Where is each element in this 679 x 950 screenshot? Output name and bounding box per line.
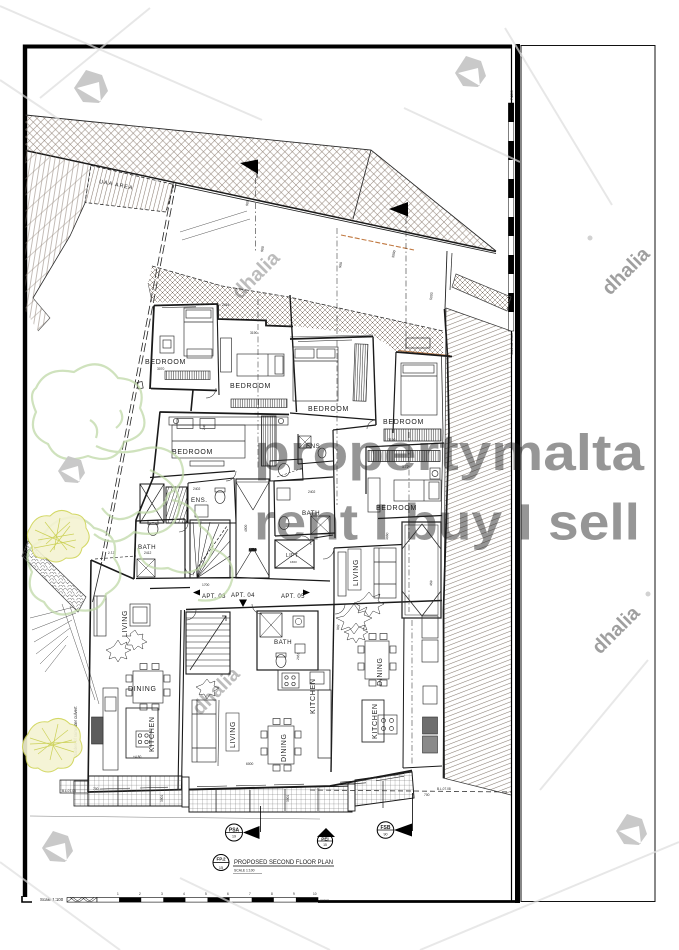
svg-text:700: 700: [424, 793, 430, 797]
svg-text:902: 902: [336, 624, 340, 630]
svg-text:LIVING: LIVING: [122, 610, 129, 637]
svg-text:6000: 6000: [246, 762, 254, 766]
svg-text:BATH: BATH: [274, 639, 292, 646]
svg-text:4: 4: [183, 892, 185, 896]
svg-text:5000: 5000: [429, 292, 434, 300]
svg-text:ENS.: ENS.: [191, 497, 207, 504]
svg-text:19: 19: [232, 835, 236, 839]
svg-text:3190: 3190: [250, 331, 258, 335]
svg-text:APT. 05: APT. 05: [281, 594, 305, 600]
svg-text:459: 459: [429, 580, 433, 586]
svg-text:propertymalta: propertymalta: [254, 424, 645, 481]
svg-text:APT. 04: APT. 04: [231, 593, 255, 599]
svg-text:rent I buy I sell: rent I buy I sell: [254, 494, 640, 551]
svg-text:DINING: DINING: [281, 733, 288, 762]
svg-text:PROPOSED SECOND FLOOR PLAN: PROPOSED SECOND FLOOR PLAN: [234, 859, 333, 866]
svg-text:DINING: DINING: [128, 686, 157, 693]
svg-text:BATH: BATH: [138, 544, 156, 551]
svg-text:15: 15: [323, 843, 327, 847]
svg-text:5: 5: [205, 892, 207, 896]
svg-text:meters: meters: [320, 898, 330, 902]
svg-text:3: 3: [161, 892, 163, 896]
svg-text:1: 1: [117, 892, 119, 896]
svg-text:B.L.07.08: B.L.07.08: [437, 787, 451, 791]
svg-text:PEI: PEI: [321, 837, 328, 842]
svg-text:700: 700: [93, 787, 99, 791]
svg-text:1663: 1663: [290, 560, 297, 564]
svg-text:3070: 3070: [157, 367, 165, 371]
svg-text:2: 2: [139, 892, 141, 896]
svg-text:LIFT: LIFT: [286, 553, 298, 559]
svg-text:PSA: PSA: [229, 828, 240, 834]
svg-text:8: 8: [271, 892, 273, 896]
svg-text:3001: 3001: [160, 794, 164, 802]
svg-text:1700: 1700: [202, 583, 210, 587]
svg-text:15: 15: [219, 866, 223, 870]
svg-text:LIVING: LIVING: [230, 721, 237, 748]
svg-text:BEDROOM: BEDROOM: [145, 359, 186, 366]
svg-text:BEDROOM: BEDROOM: [172, 449, 213, 456]
svg-text:90: 90: [384, 833, 388, 837]
svg-text:KITCHEN: KITCHEN: [149, 716, 156, 752]
svg-text:7: 7: [249, 892, 251, 896]
svg-text:DINING: DINING: [377, 657, 384, 686]
svg-text:4900: 4900: [244, 524, 248, 532]
svg-text:2651: 2651: [296, 652, 300, 660]
svg-text:FP.2: FP.2: [216, 857, 226, 862]
svg-text:B.L.07.08: B.L.07.08: [62, 789, 76, 793]
svg-text:2402: 2402: [193, 487, 201, 491]
svg-text:P.1293: P.1293: [510, 90, 514, 100]
svg-text:KITCHEN: KITCHEN: [310, 678, 317, 714]
svg-text:2419: 2419: [222, 303, 230, 307]
svg-text:BEDROOM: BEDROOM: [230, 383, 271, 390]
svg-text:FSB: FSB: [381, 825, 391, 831]
svg-text:9: 9: [293, 892, 295, 896]
svg-text:240: 240: [202, 424, 206, 430]
svg-text:SCALE 1:100: SCALE 1:100: [234, 869, 255, 873]
svg-text:10: 10: [313, 892, 317, 896]
svg-text:KITCHEN: KITCHEN: [372, 703, 379, 739]
svg-text:2412: 2412: [144, 551, 152, 555]
svg-text:3001: 3001: [286, 794, 290, 802]
svg-text:LIVING: LIVING: [353, 559, 360, 586]
svg-text:6: 6: [227, 892, 229, 896]
svg-text:BEDROOM: BEDROOM: [308, 406, 349, 413]
svg-text:+4.80: +4.80: [133, 755, 142, 759]
